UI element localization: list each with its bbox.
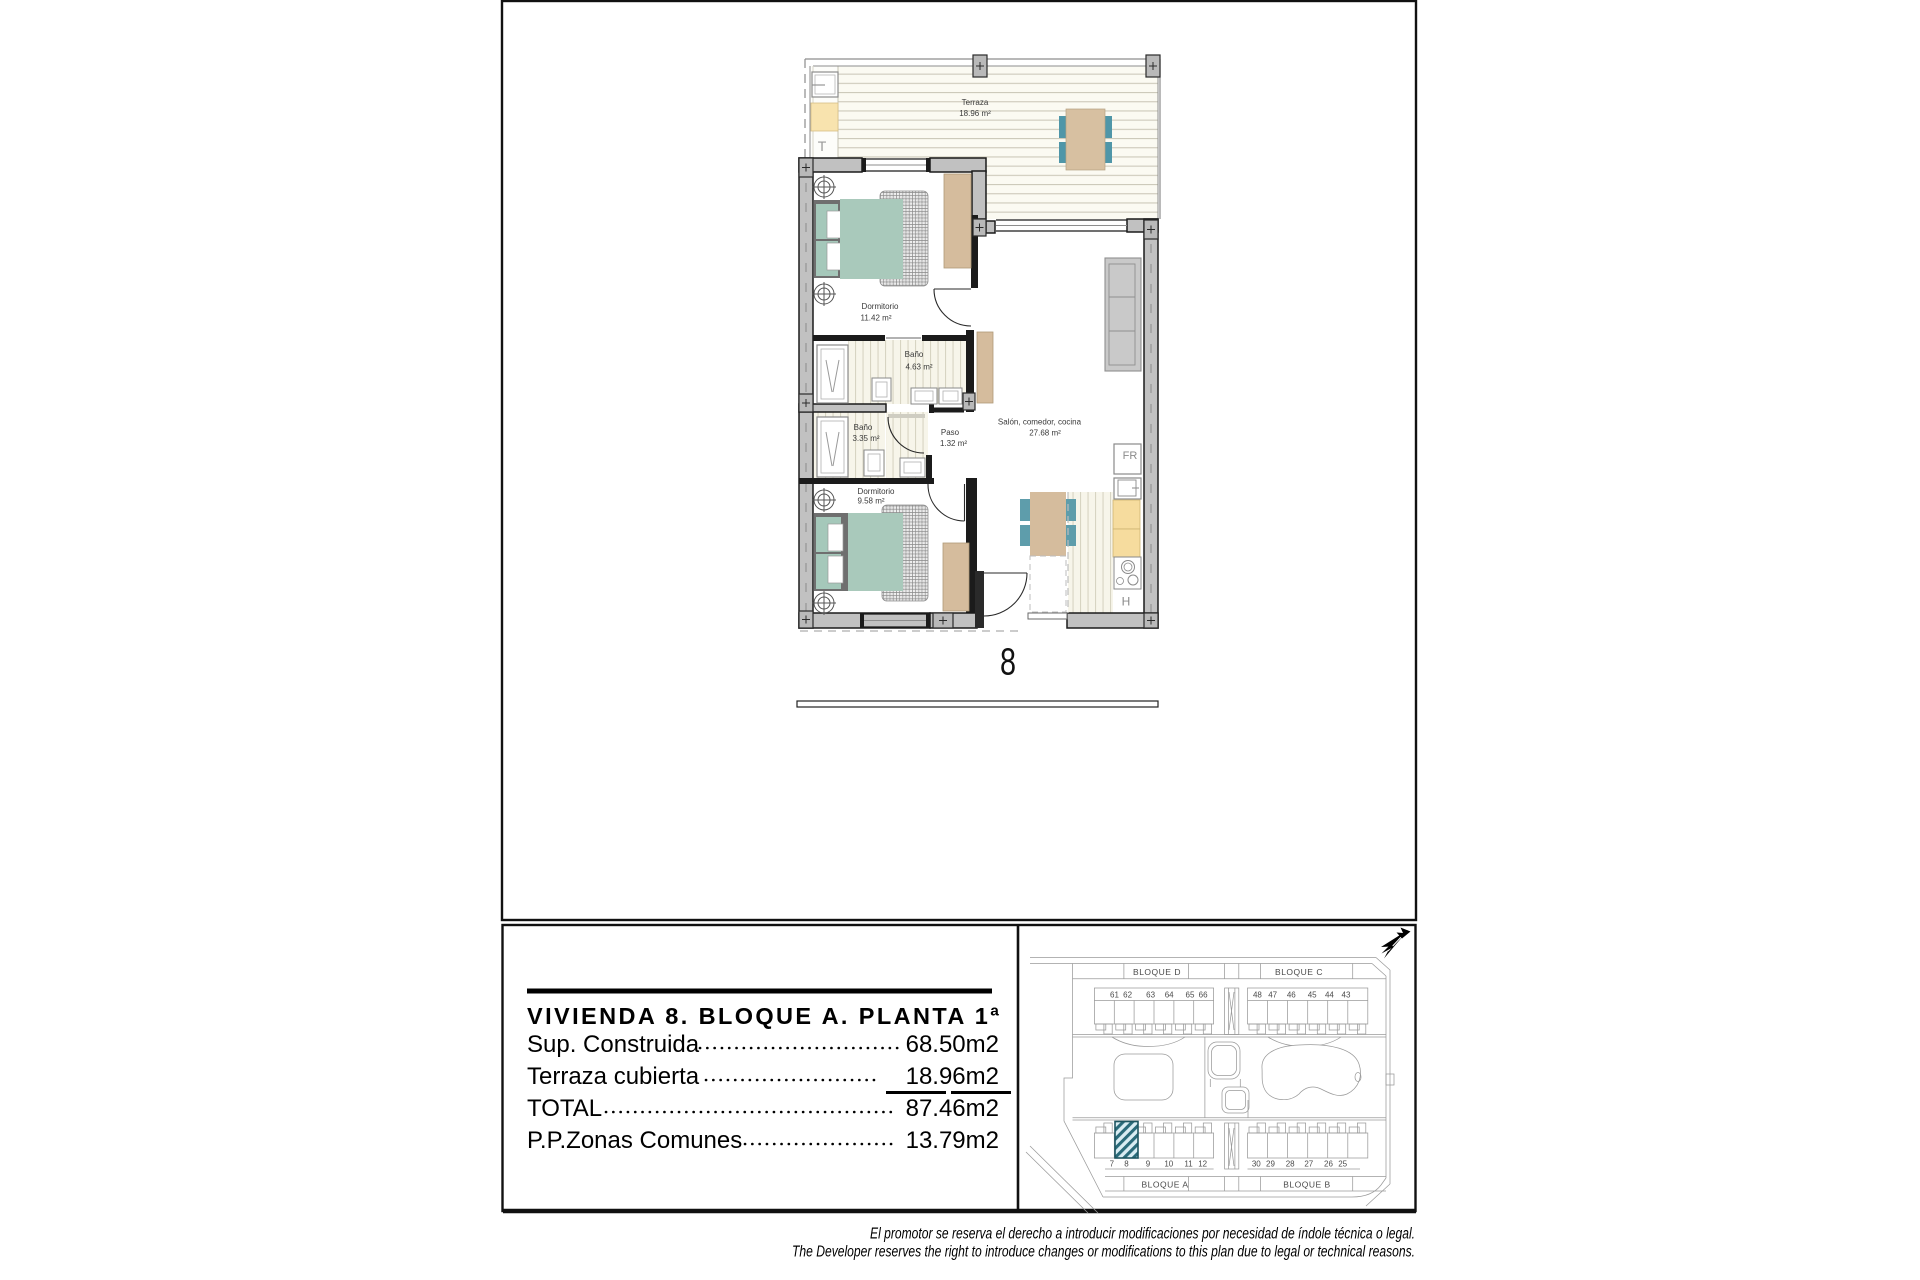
svg-text:62: 62 — [1123, 991, 1132, 1000]
svg-text:11.42 m²: 11.42 m² — [861, 314, 892, 323]
svg-text:28: 28 — [1286, 1160, 1295, 1169]
svg-text:BLOQUE B: BLOQUE B — [1283, 1180, 1330, 1190]
svg-text:VIVIENDA 8. BLOQUE A. PLANTA 1: VIVIENDA 8. BLOQUE A. PLANTA 1ª — [527, 1003, 1001, 1029]
svg-text:3.35 m²: 3.35 m² — [852, 434, 879, 443]
svg-text:P.P.Zonas Comunes: P.P.Zonas Comunes — [527, 1127, 742, 1154]
svg-text:Baño: Baño — [905, 350, 924, 359]
svg-text:Paso: Paso — [941, 428, 960, 437]
svg-text:65: 65 — [1186, 991, 1195, 1000]
svg-text:El promotor se reserva el dere: El promotor se reserva el derecho a intr… — [870, 1226, 1415, 1243]
svg-text:46: 46 — [1287, 991, 1296, 1000]
svg-text:44: 44 — [1325, 991, 1334, 1000]
svg-text:Terraza cubierta: Terraza cubierta — [527, 1063, 700, 1090]
svg-text:29: 29 — [1266, 1160, 1275, 1169]
svg-text:7: 7 — [1110, 1160, 1115, 1169]
svg-text:48: 48 — [1253, 991, 1262, 1000]
svg-text:45: 45 — [1308, 991, 1317, 1000]
svg-text:18.96 m²: 18.96 m² — [959, 109, 991, 118]
svg-text:11: 11 — [1184, 1160, 1193, 1169]
svg-text:Dormitorio: Dormitorio — [862, 302, 899, 311]
svg-text:8: 8 — [1000, 642, 1016, 684]
svg-text:26: 26 — [1324, 1160, 1333, 1169]
svg-text:Terraza: Terraza — [962, 98, 989, 107]
svg-text:27: 27 — [1304, 1160, 1313, 1169]
svg-text:FR: FR — [1123, 450, 1138, 462]
svg-text:66: 66 — [1199, 991, 1208, 1000]
svg-text:TOTAL: TOTAL — [527, 1095, 602, 1122]
svg-text:1.32 m²: 1.32 m² — [940, 439, 967, 448]
svg-text:18.96m2: 18.96m2 — [906, 1063, 999, 1090]
svg-text:47: 47 — [1268, 991, 1277, 1000]
svg-text:68.50m2: 68.50m2 — [906, 1031, 999, 1058]
svg-text:63: 63 — [1146, 991, 1155, 1000]
svg-text:25: 25 — [1338, 1160, 1347, 1169]
svg-text:H: H — [1122, 595, 1131, 609]
svg-text:BLOQUE A: BLOQUE A — [1142, 1180, 1189, 1190]
svg-text:10: 10 — [1164, 1160, 1173, 1169]
svg-text:BLOQUE D: BLOQUE D — [1133, 967, 1181, 977]
svg-text:T: T — [818, 138, 827, 154]
svg-text:87.46m2: 87.46m2 — [906, 1095, 999, 1122]
svg-text:30: 30 — [1252, 1160, 1261, 1169]
svg-text:13.79m2: 13.79m2 — [906, 1127, 999, 1154]
svg-text:61: 61 — [1110, 991, 1119, 1000]
svg-text:43: 43 — [1342, 991, 1351, 1000]
svg-text:Baño: Baño — [854, 423, 873, 432]
svg-text:27.68 m²: 27.68 m² — [1029, 429, 1061, 438]
svg-text:4.63 m²: 4.63 m² — [905, 363, 932, 372]
svg-text:Salón, comedor, cocina: Salón, comedor, cocina — [998, 418, 1082, 427]
svg-text:12: 12 — [1198, 1160, 1207, 1169]
svg-text:Dormitorio: Dormitorio — [858, 487, 895, 496]
svg-text:Sup. Construida: Sup. Construida — [527, 1031, 700, 1058]
svg-text:8: 8 — [1124, 1160, 1129, 1169]
svg-text:9: 9 — [1146, 1160, 1151, 1169]
svg-text:BLOQUE C: BLOQUE C — [1275, 967, 1323, 977]
svg-text:64: 64 — [1165, 991, 1174, 1000]
svg-text:The Developer reserves the rig: The Developer reserves the right to intr… — [792, 1244, 1415, 1261]
svg-text:9.58 m²: 9.58 m² — [857, 497, 884, 506]
